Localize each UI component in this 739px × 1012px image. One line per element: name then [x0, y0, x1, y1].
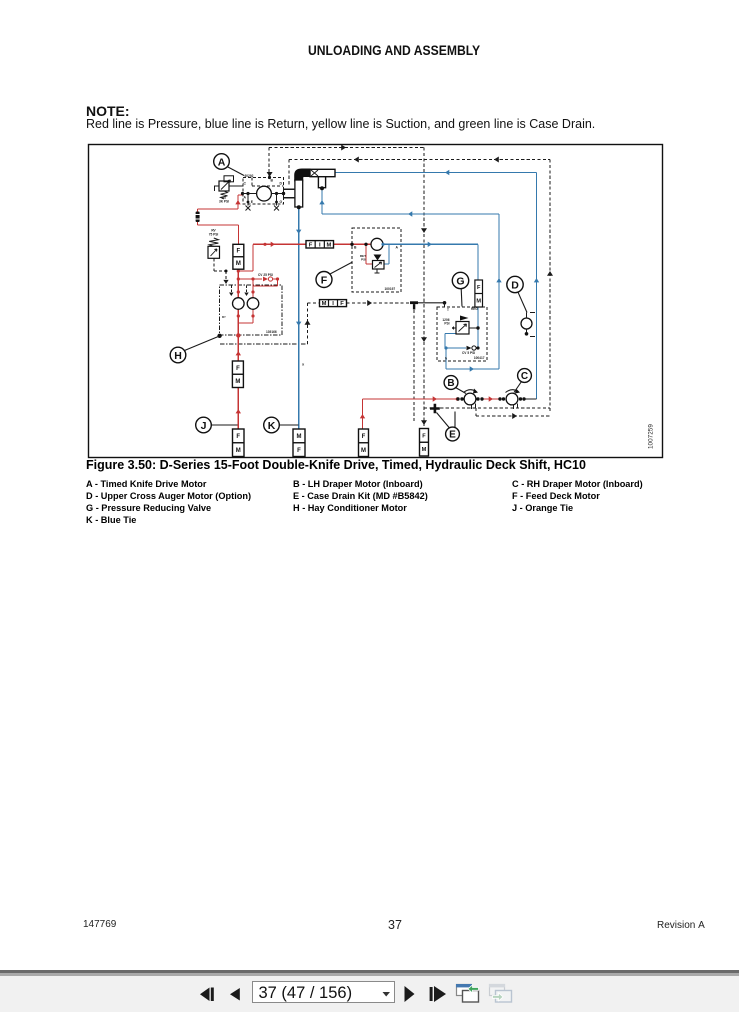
svg-text:M: M [326, 242, 331, 248]
svg-text:F: F [362, 434, 366, 440]
svg-text:C: C [521, 371, 528, 382]
svg-text:F: F [321, 274, 328, 286]
svg-text:B: B [447, 378, 454, 389]
svg-text:J: J [201, 420, 207, 432]
svg-text:F: F [236, 434, 240, 440]
svg-text:M: M [235, 379, 240, 385]
svg-text:M: M [361, 448, 366, 454]
svg-text:M: M [476, 298, 481, 304]
svg-text:DY: DY [222, 315, 226, 319]
svg-text:B: B [354, 246, 357, 250]
svg-text:100417: 100417 [474, 356, 485, 360]
svg-text:H: H [174, 350, 182, 362]
svg-text:REG: REG [471, 307, 478, 311]
svg-text:100197: 100197 [385, 287, 396, 291]
svg-text:A: A [244, 196, 247, 200]
svg-text:h: h [445, 356, 447, 360]
svg-text:K: K [268, 420, 276, 432]
svg-text:T: T [447, 308, 449, 312]
svg-text:3K PSI: 3K PSI [219, 200, 229, 204]
svg-text:A: A [396, 246, 399, 250]
svg-text:G: G [280, 200, 283, 204]
svg-text:F: F [297, 448, 301, 454]
svg-text:M: M [322, 301, 327, 307]
svg-text:60292: 60292 [245, 174, 254, 178]
svg-text:CV 5 PSI: CV 5 PSI [462, 351, 475, 355]
svg-text:F: F [236, 366, 240, 372]
svg-text:F: F [422, 433, 426, 439]
svg-text:M: M [236, 448, 241, 454]
svg-text:F: F [309, 242, 313, 248]
svg-text:1007259: 1007259 [648, 424, 655, 449]
svg-text:E: E [251, 200, 254, 204]
svg-text:M: M [422, 447, 427, 453]
svg-text:C: C [244, 182, 247, 186]
svg-text:PSI: PSI [444, 322, 449, 326]
svg-text:F: F [237, 249, 241, 255]
svg-text:x: x [302, 362, 305, 367]
svg-text:75 PSI: 75 PSI [209, 232, 219, 236]
svg-text:G: G [456, 275, 464, 287]
svg-text:CV 25 PSI: CV 25 PSI [258, 273, 273, 277]
svg-text:D: D [511, 279, 519, 291]
svg-text:A: A [218, 156, 226, 168]
svg-text:F: F [477, 285, 481, 291]
svg-text:B: B [271, 179, 274, 183]
svg-text:D: D [280, 182, 283, 186]
svg-text:PSI: PSI [361, 258, 366, 262]
svg-text:E: E [449, 430, 456, 441]
svg-text:F: F [340, 301, 344, 307]
svg-text:M: M [236, 261, 241, 267]
svg-text:M: M [297, 434, 302, 440]
svg-text:139166: 139166 [266, 330, 277, 334]
